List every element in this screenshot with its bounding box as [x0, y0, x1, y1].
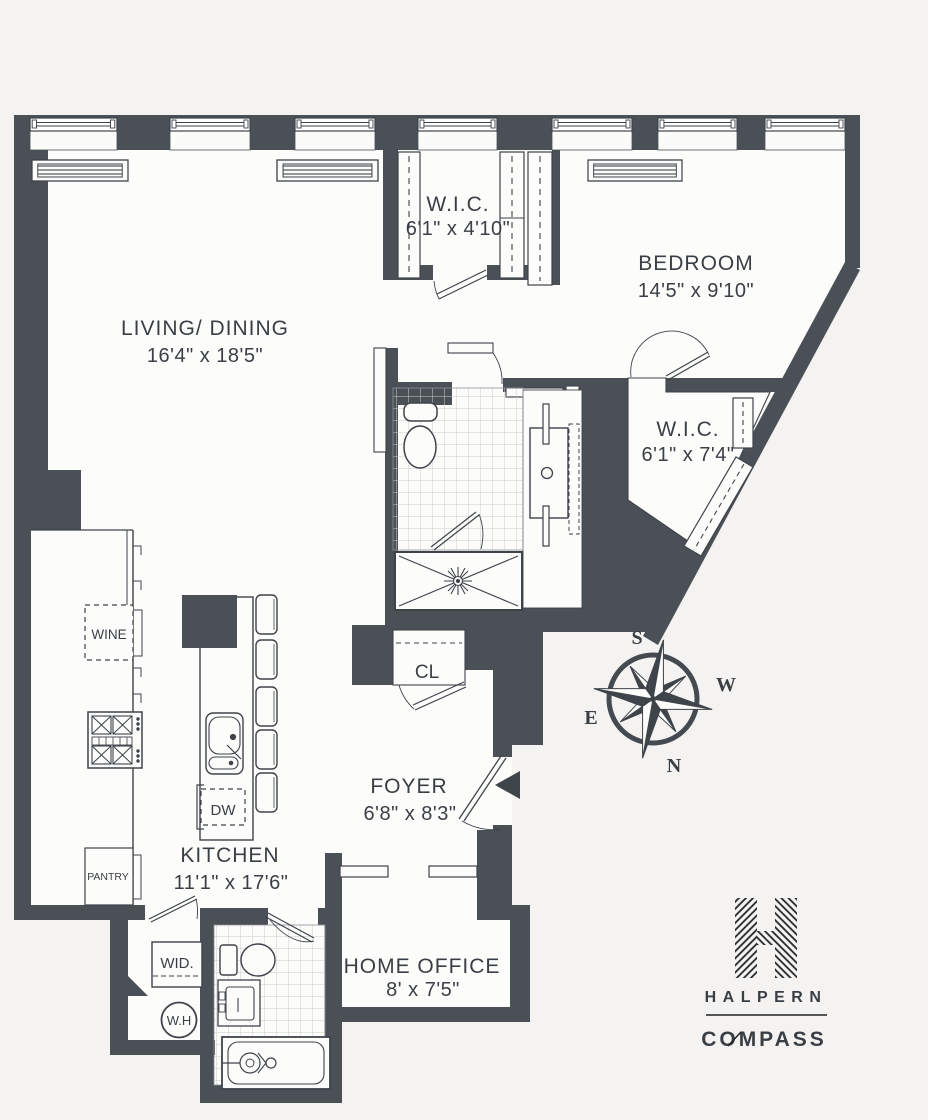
- towel-bar-icon: [543, 404, 549, 444]
- floor-plan: S W E N LIVING/ DINING 16'4" x 18'5" W.I…: [0, 0, 928, 1120]
- dishwasher-label: DW: [211, 802, 237, 819]
- halpern-wordmark: HALPERN: [705, 989, 828, 1006]
- compass-east-label: E: [584, 707, 597, 729]
- room-dims-wic2: 6'1" x 7'4": [642, 444, 735, 466]
- room-label-wic1: W.I.C.: [426, 193, 489, 216]
- room-label-kitchen: KITCHEN: [180, 844, 279, 867]
- room-dims-home-office: 8' x 7'5": [386, 979, 460, 1001]
- floor-plan-page: S W E N LIVING/ DINING 16'4" x 18'5" W.I…: [0, 0, 928, 1120]
- toilet-icon: [404, 403, 437, 421]
- radiator-icon: [32, 160, 128, 181]
- bathtub-icon: [222, 1037, 330, 1089]
- room-dims-bedroom: 14'5" x 9'10": [638, 280, 754, 302]
- compass-wordmark: COMPASS: [701, 1028, 827, 1051]
- hall-shelf: [448, 343, 493, 353]
- pantry-label: PANTRY: [87, 871, 129, 883]
- structural-column: [182, 595, 237, 648]
- bar-stools: [256, 595, 277, 812]
- compass-north-label: N: [667, 755, 682, 777]
- room-dims-living: 16'4" x 18'5": [147, 345, 263, 367]
- room-label-home-office: HOME OFFICE: [344, 955, 501, 978]
- wine-label: WINE: [91, 627, 126, 642]
- room-label-wic2: W.I.C.: [656, 418, 719, 441]
- radiator-icon: [588, 160, 682, 181]
- pilaster: [374, 348, 386, 452]
- sink-icon: [218, 980, 260, 1026]
- compass-west-label: W: [716, 674, 736, 696]
- toilet-icon: [220, 945, 237, 975]
- room-dims-foyer: 6'8" x 8'3": [364, 803, 457, 825]
- island-sink-icon: [206, 713, 243, 774]
- range-icon: [88, 712, 142, 768]
- radiator-icon: [277, 160, 378, 181]
- second-bathroom: [214, 913, 330, 1089]
- towel-bar-icon: [543, 506, 549, 546]
- compass-south-label: S: [631, 627, 642, 649]
- sliding-panel: [340, 866, 388, 877]
- room-dims-kitchen: 11'1" x 17'6": [174, 872, 289, 894]
- room-label-foyer: FOYER: [370, 775, 447, 798]
- room-dims-wic1: 6'1" x 4'10": [406, 218, 511, 240]
- sliding-panel: [429, 866, 477, 877]
- washer-dryer-label: WID.: [160, 955, 193, 972]
- water-heater-label: W.H: [167, 1013, 192, 1028]
- room-label-living: LIVING/ DINING: [121, 317, 289, 340]
- closet-label: CL: [415, 662, 439, 683]
- room-label-bedroom: BEDROOM: [638, 252, 754, 275]
- toilet-icon: [241, 944, 275, 976]
- toilet-icon: [404, 426, 436, 468]
- shower-drain-icon: [444, 567, 472, 595]
